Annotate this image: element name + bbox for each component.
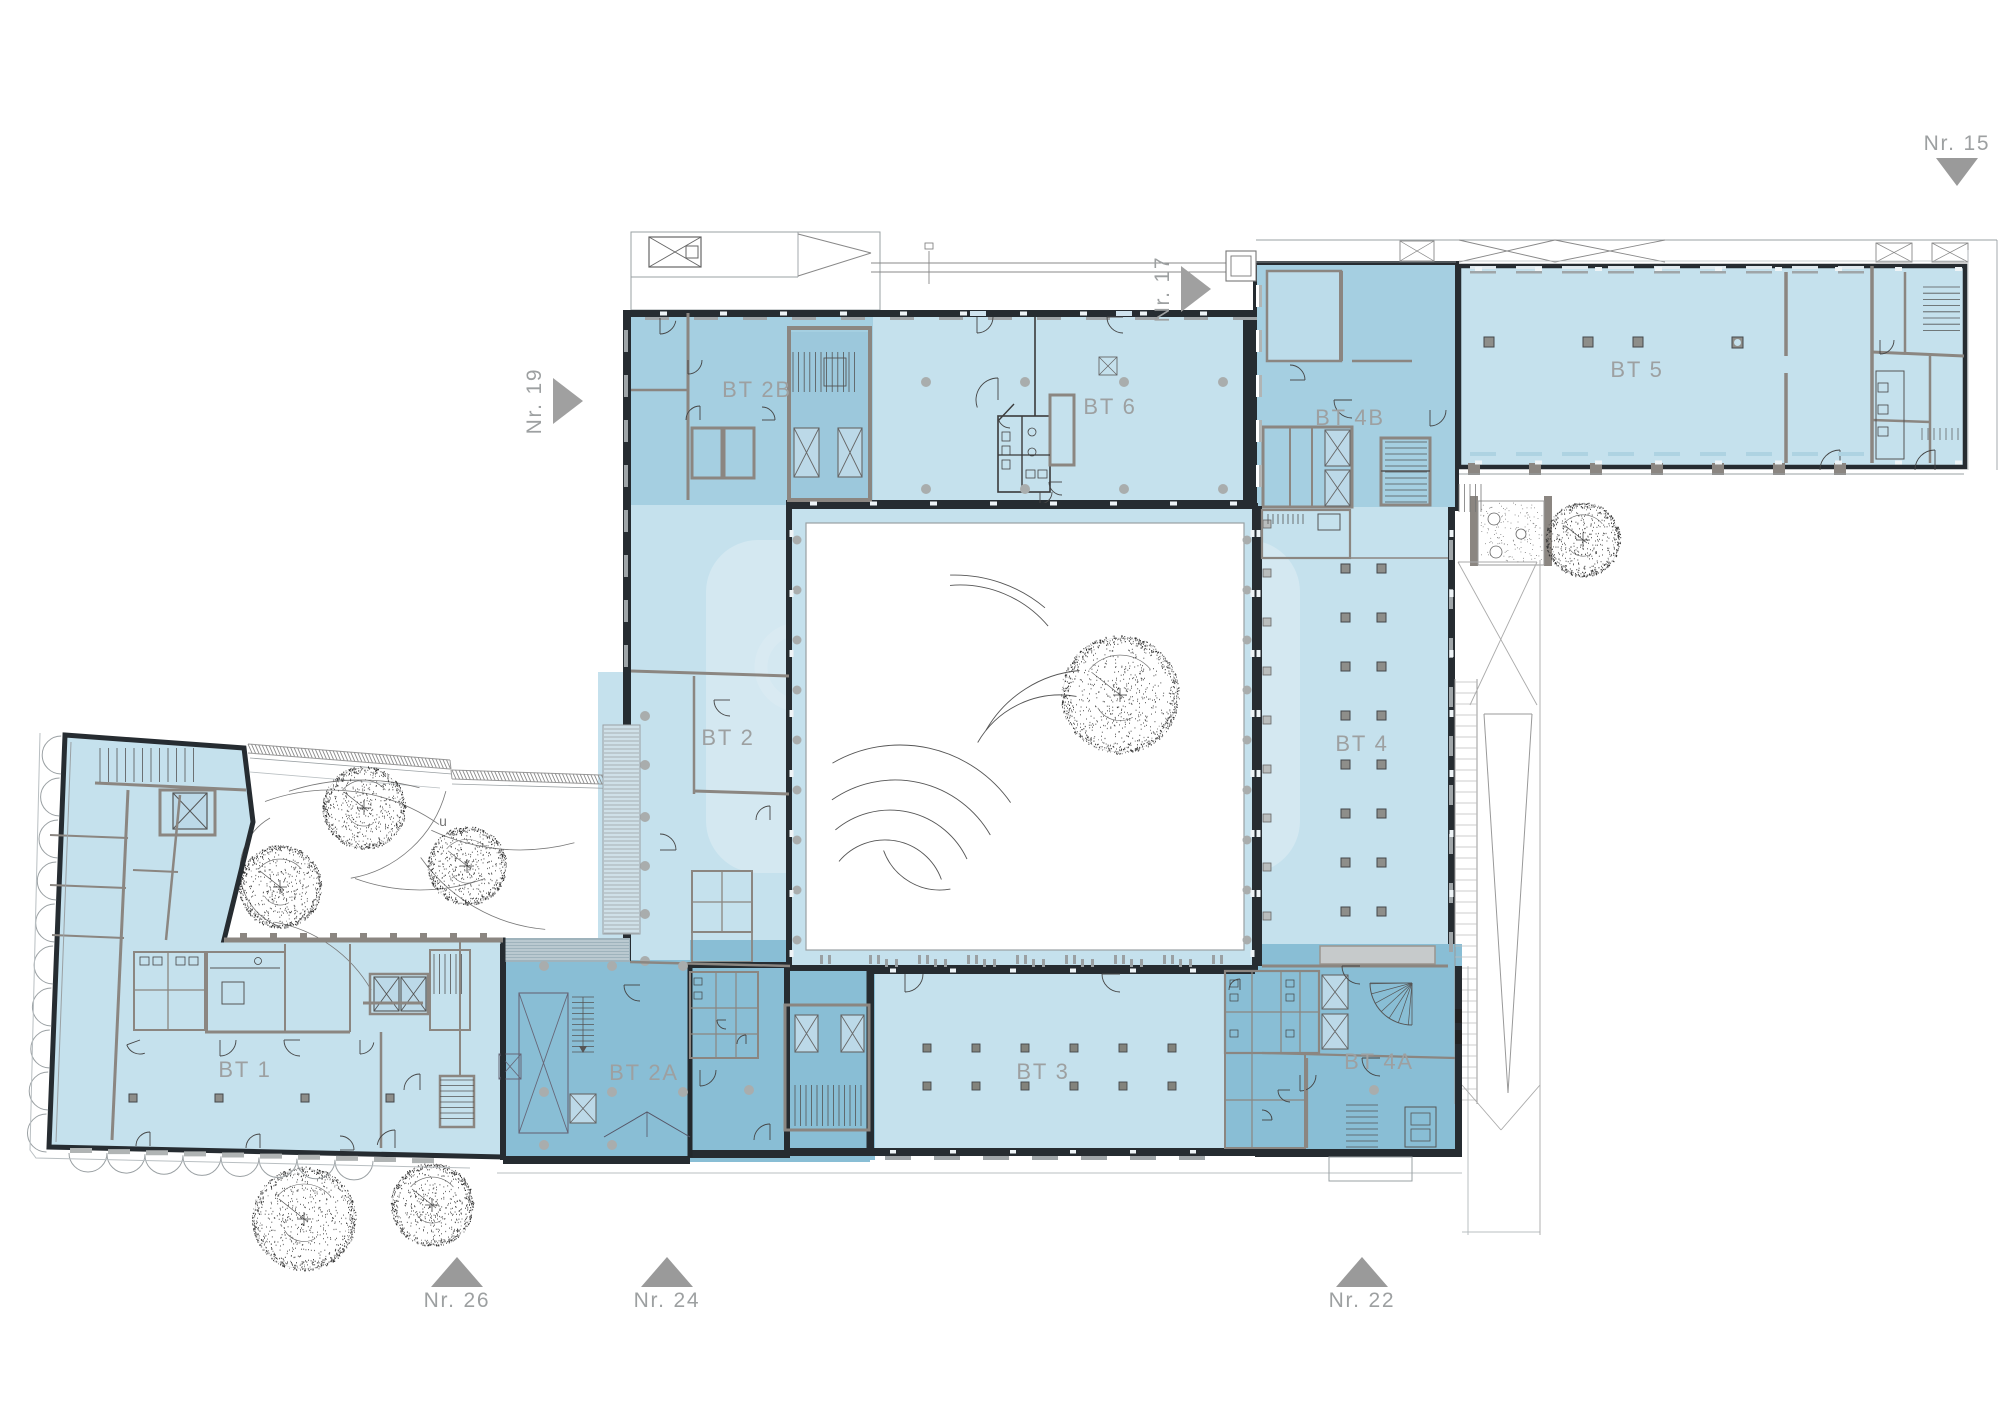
svg-text:BT 6: BT 6	[1083, 394, 1136, 419]
svg-text:BT 5: BT 5	[1610, 357, 1663, 382]
svg-text:Nr. 15: Nr. 15	[1924, 132, 1991, 155]
svg-text:u: u	[439, 813, 447, 829]
svg-text:Nr. 19: Nr. 19	[523, 368, 546, 435]
svg-text:BT 4A: BT 4A	[1344, 1049, 1414, 1074]
svg-text:Nr. 17: Nr. 17	[1151, 256, 1174, 323]
svg-text:BT 1: BT 1	[218, 1057, 271, 1082]
svg-text:BT 4B: BT 4B	[1315, 405, 1385, 430]
svg-text:BT 2: BT 2	[701, 725, 754, 750]
svg-text:BT 2A: BT 2A	[609, 1060, 679, 1085]
svg-text:Nr. 26: Nr. 26	[424, 1289, 491, 1312]
svg-text:BT 3: BT 3	[1016, 1059, 1069, 1084]
svg-text:Nr. 22: Nr. 22	[1329, 1289, 1396, 1312]
svg-text:Nr. 24: Nr. 24	[634, 1289, 701, 1312]
svg-text:BT 4: BT 4	[1335, 731, 1388, 756]
svg-text:BT 2B: BT 2B	[722, 377, 792, 402]
